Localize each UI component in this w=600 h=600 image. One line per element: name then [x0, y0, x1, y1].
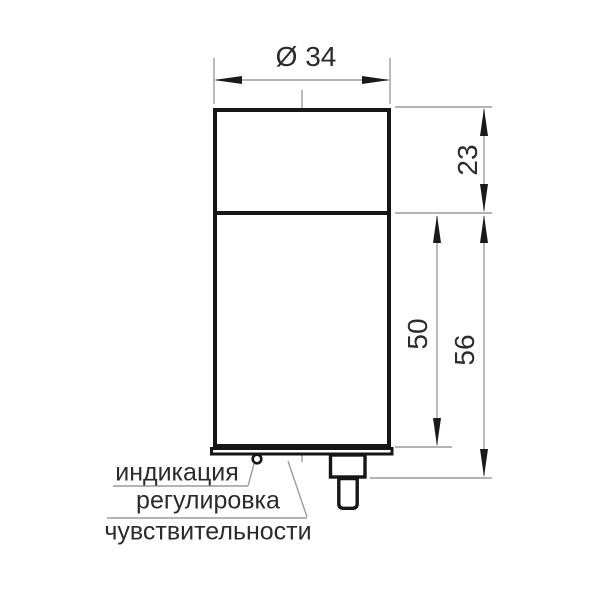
callout-indication: индикация [115, 459, 239, 488]
arrow-56-top [480, 215, 488, 243]
connector-block [331, 455, 366, 477]
sensor-bottom-cap [212, 449, 393, 455]
dimension-label-23: 23 [452, 144, 484, 175]
arrow-50-bottom [433, 418, 441, 446]
arrow-56-bottom [480, 449, 488, 477]
technical-drawing-canvas: Ø 34 23 50 56 индикация регулировка чувс… [0, 0, 600, 600]
led-indicator [253, 455, 262, 464]
connector-plug [339, 479, 357, 509]
callout-adjustment-line1: регулировка [136, 487, 280, 516]
drawing-linework [0, 0, 600, 600]
dimension-label-diameter: Ø 34 [276, 41, 337, 73]
leader-line-indication [248, 464, 254, 486]
arrow-50-top [433, 215, 441, 243]
arrow-23-bottom [480, 184, 488, 212]
arrow-diameter-left [214, 76, 242, 84]
leader-line-adjustment [288, 461, 307, 517]
arrow-23-top [480, 108, 488, 136]
arrow-diameter-right [362, 76, 390, 84]
dimension-label-56: 56 [449, 334, 481, 365]
callout-adjustment-line2: чувствительности [104, 518, 311, 547]
sensor-body [215, 110, 389, 446]
dimension-label-50: 50 [402, 318, 434, 349]
